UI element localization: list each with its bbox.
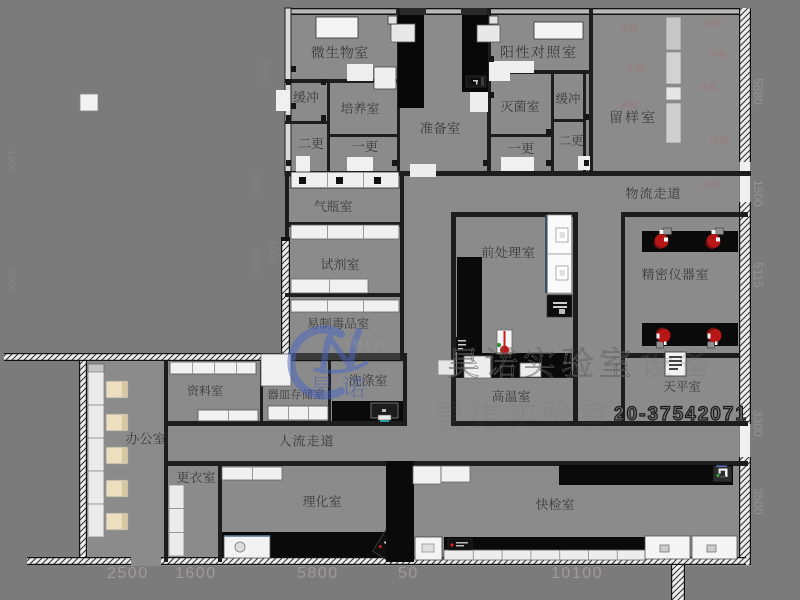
svg-text:5115: 5115	[751, 262, 765, 288]
svg-text:3300: 3300	[751, 410, 765, 437]
svg-text:10100: 10100	[551, 565, 603, 582]
svg-text:3000: 3000	[249, 250, 261, 274]
svg-text:1600: 1600	[175, 565, 217, 582]
svg-text:3500: 3500	[751, 488, 765, 515]
svg-text:2800: 2800	[5, 270, 16, 293]
svg-text:1.88 1 3.5: 1.88 1 3.5	[345, 339, 385, 349]
svg-text:5880: 5880	[751, 78, 765, 105]
svg-text:1800: 1800	[5, 150, 16, 173]
svg-text:20-37542071: 20-37542071	[614, 404, 748, 425]
svg-text:5800: 5800	[297, 565, 339, 582]
svg-text:1500: 1500	[751, 180, 765, 207]
svg-text:2500: 2500	[107, 565, 149, 582]
svg-text:1000: 1000	[267, 240, 279, 264]
svg-text:1800: 1800	[249, 170, 261, 194]
svg-text:2400: 2400	[260, 60, 272, 84]
svg-text:50: 50	[398, 565, 419, 582]
